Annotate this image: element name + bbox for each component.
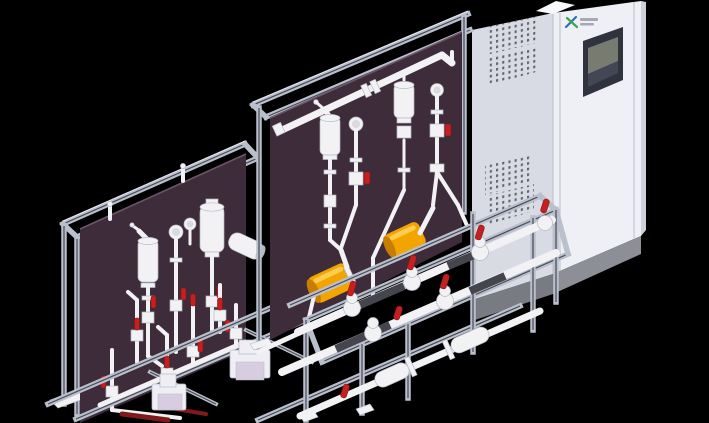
valve-handle[interactable] bbox=[181, 288, 186, 300]
cad-render-viewport bbox=[0, 0, 709, 423]
valve-handle[interactable] bbox=[364, 172, 370, 184]
valve-handle[interactable] bbox=[135, 318, 140, 330]
valve-handle[interactable] bbox=[218, 298, 223, 310]
valve-handle[interactable] bbox=[191, 294, 196, 306]
cabinet-right-edge bbox=[641, 1, 646, 236]
valve-handle[interactable] bbox=[165, 356, 170, 368]
scene bbox=[0, 0, 709, 423]
valve-handle[interactable] bbox=[151, 296, 156, 308]
valve-handle[interactable] bbox=[445, 124, 451, 136]
